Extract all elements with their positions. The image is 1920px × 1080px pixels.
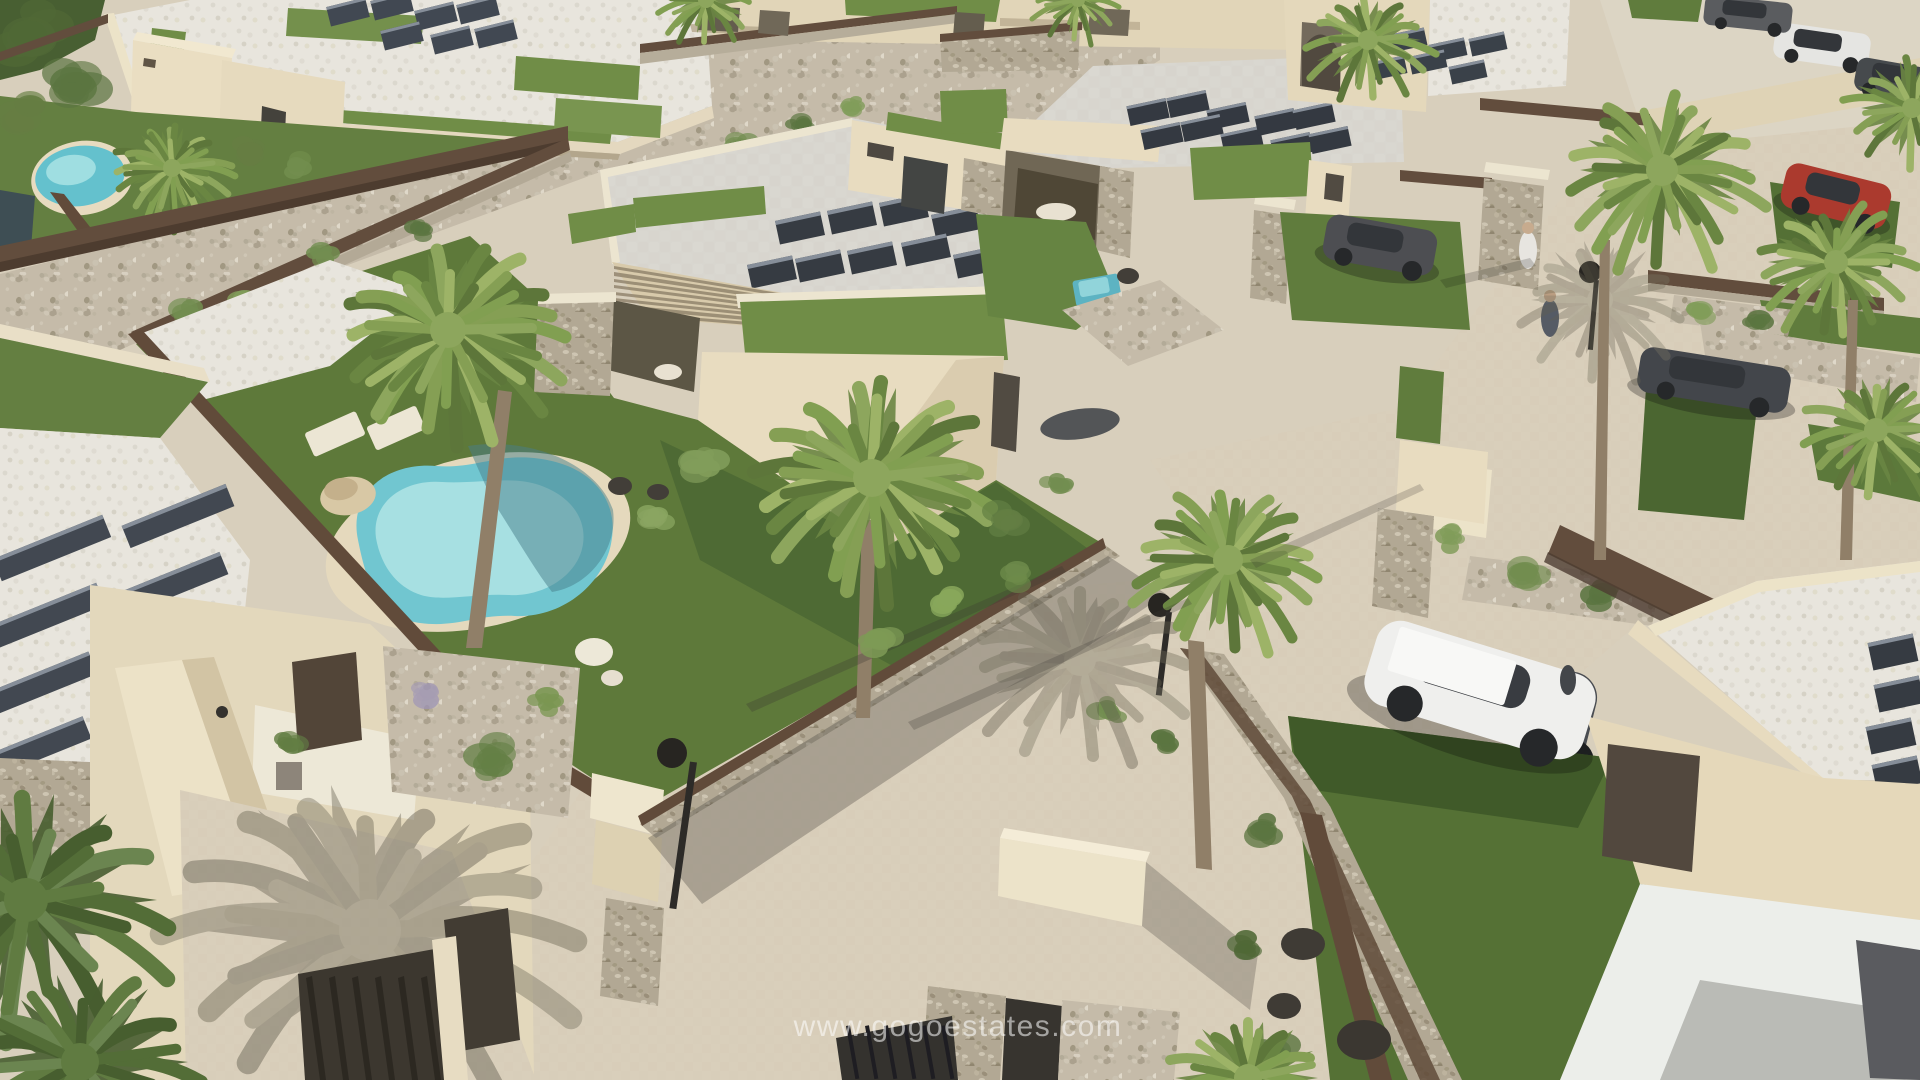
svg-text:www.gogoestates.com: www.gogoestates.com bbox=[793, 1010, 1123, 1043]
